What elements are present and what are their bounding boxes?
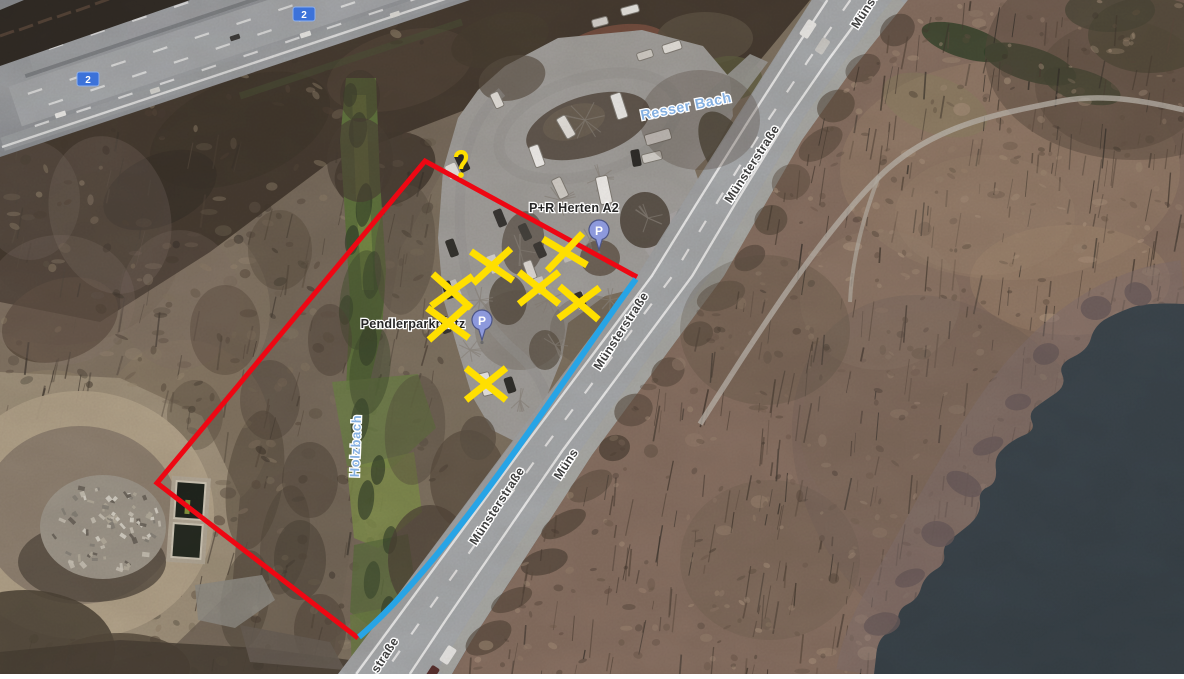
svg-text:2: 2 bbox=[85, 75, 91, 86]
svg-text:P: P bbox=[478, 314, 486, 328]
svg-text:Holzbach: Holzbach bbox=[347, 414, 364, 477]
svg-text:2: 2 bbox=[301, 10, 307, 21]
svg-text:P+R Herten A2: P+R Herten A2 bbox=[529, 201, 619, 215]
svg-text:P: P bbox=[595, 224, 603, 238]
